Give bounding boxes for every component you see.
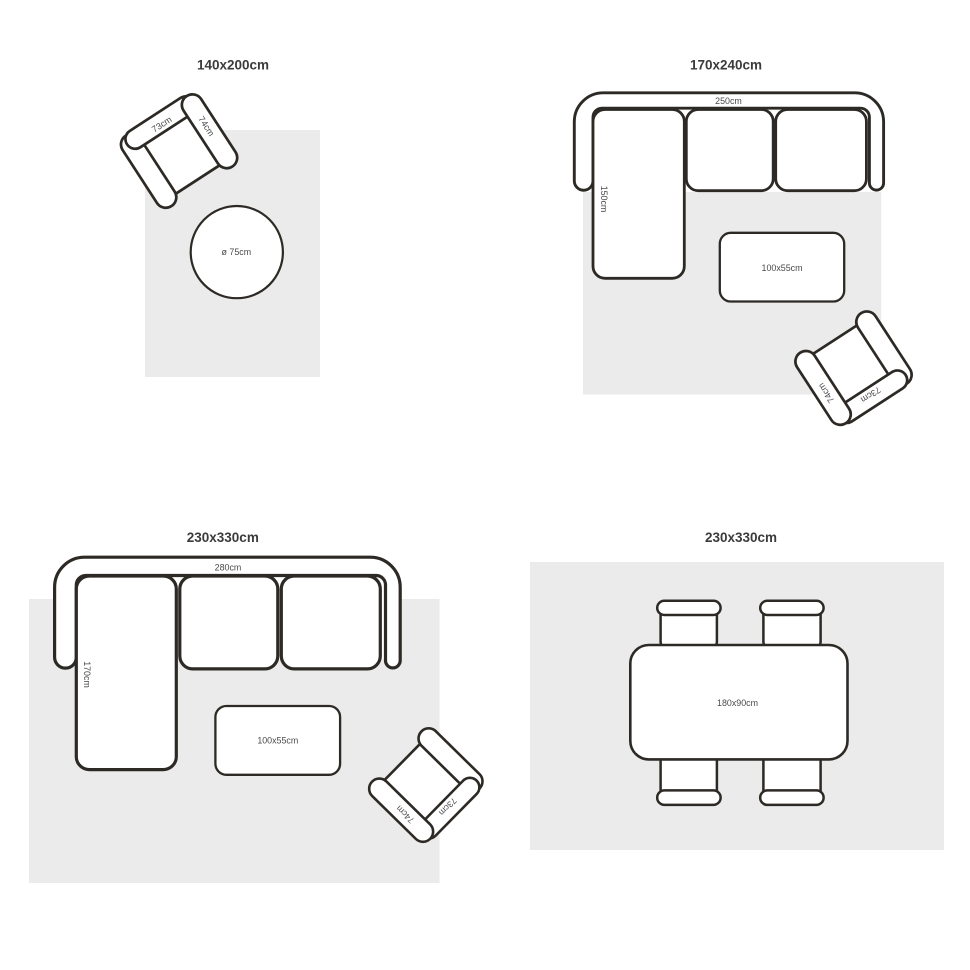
- svg-text:140x200cm: 140x200cm: [197, 58, 269, 73]
- svg-text:100x55cm: 100x55cm: [257, 736, 298, 746]
- svg-text:ø 75cm: ø 75cm: [222, 247, 252, 257]
- svg-text:150cm: 150cm: [599, 186, 609, 213]
- svg-text:230x330cm: 230x330cm: [187, 530, 259, 545]
- svg-text:250cm: 250cm: [715, 96, 742, 106]
- svg-text:230x330cm: 230x330cm: [705, 530, 777, 545]
- svg-text:170cm: 170cm: [82, 661, 92, 688]
- svg-text:180x90cm: 180x90cm: [717, 698, 758, 708]
- svg-text:100x55cm: 100x55cm: [762, 263, 803, 273]
- svg-text:170x240cm: 170x240cm: [690, 58, 762, 73]
- svg-text:280cm: 280cm: [215, 562, 242, 572]
